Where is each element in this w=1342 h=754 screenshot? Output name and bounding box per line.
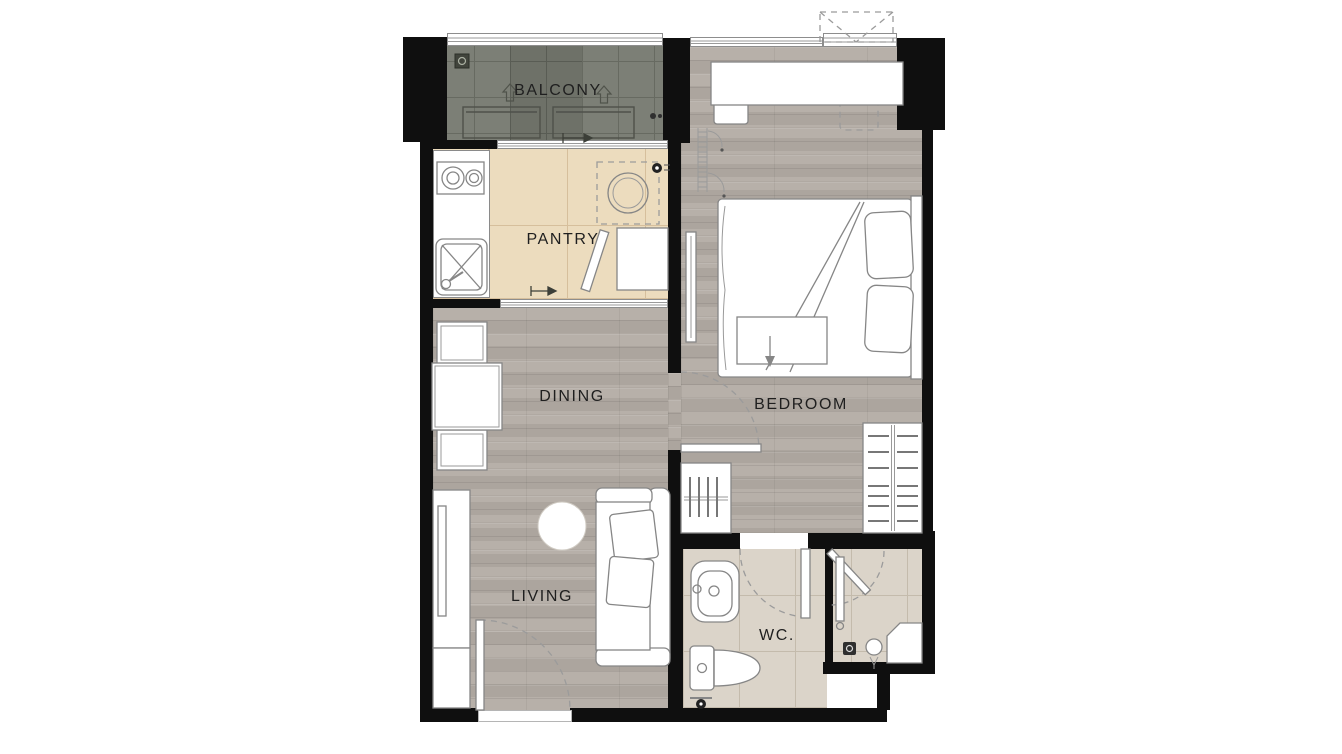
room-label-balcony: BALCONY: [514, 82, 602, 100]
shower-head-icon: [836, 557, 844, 630]
paper-holder-icon: [690, 698, 712, 709]
dining-table: [432, 363, 502, 430]
floor-plan: BALCONY PANTRY DINING BEDROOM LIVING WC.: [0, 0, 1342, 754]
basin-icon: [691, 561, 739, 622]
sliding-direction-arrow: [563, 133, 592, 143]
toilet-icon: [690, 646, 760, 690]
sofa: [596, 488, 670, 666]
entrance-door-leaf: [476, 620, 484, 710]
sofa-pillow: [606, 556, 654, 608]
balcony-drain-icon: [455, 54, 469, 68]
pillow: [864, 211, 913, 279]
wardrobe: [863, 423, 922, 533]
bed: [718, 196, 922, 379]
entrance-door: [476, 620, 570, 710]
coffee-table: [538, 502, 586, 550]
room-label-dining: DINING: [539, 388, 605, 406]
curtain-icon: [698, 128, 726, 198]
balcony-planter: [463, 107, 634, 138]
headboard: [911, 196, 922, 379]
mirror-panel: [686, 232, 696, 342]
bedroom-door: [681, 372, 761, 452]
wardrobe: [681, 463, 731, 533]
sink-icon: [436, 239, 487, 295]
blanket-fold: [737, 317, 827, 364]
outlet-icon: [652, 163, 670, 173]
shower-stool-icon: [866, 639, 882, 669]
corner-shelf: [887, 623, 922, 663]
room-label-wc: WC.: [759, 627, 795, 645]
desk: [711, 62, 903, 105]
floor-plan-svg: [0, 0, 1342, 754]
door-handle-icon: [650, 113, 662, 119]
room-label-pantry: PANTRY: [526, 231, 599, 249]
washing-machine-icon: [597, 162, 659, 224]
stove-icon: [437, 162, 484, 194]
sliding-direction-arrow: [531, 286, 556, 296]
ac-unit: [820, 12, 893, 42]
tv-cabinet: [433, 490, 470, 708]
sofa-pillow: [609, 509, 659, 562]
wc-door-leaf: [801, 549, 810, 618]
pillow: [864, 285, 913, 353]
tv-icon: [438, 506, 446, 616]
bedroom-door-leaf: [681, 444, 761, 452]
room-label-living: LIVING: [511, 588, 573, 606]
wc-door: [740, 549, 810, 618]
floor-drain-icon: [843, 642, 856, 655]
room-label-bedroom: BEDROOM: [754, 396, 848, 414]
